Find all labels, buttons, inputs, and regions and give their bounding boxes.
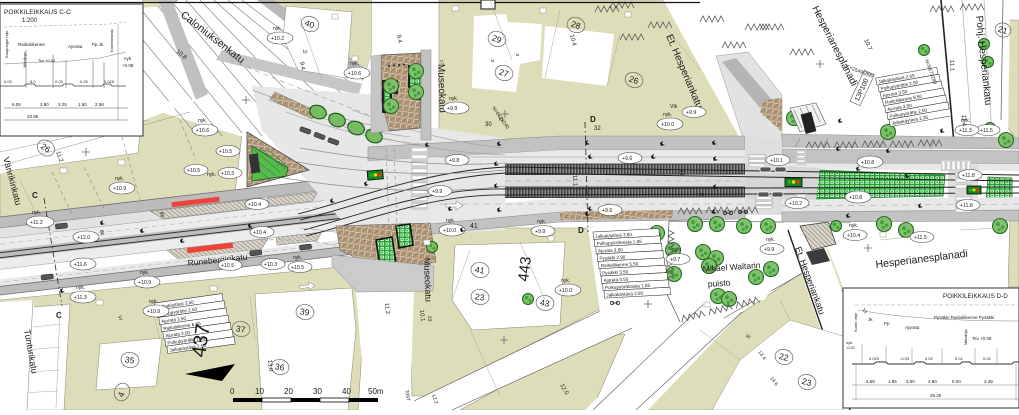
svg-text:puisto: puisto [707,277,731,289]
svg-text:+10.9: +10.9 [147,309,160,315]
svg-text:13.0: 13.0 [266,360,273,373]
svg-text:D: D [578,226,584,235]
svg-text:Tsv +0.08: Tsv +0.08 [38,58,56,63]
svg-text:+9.9: +9.9 [686,110,696,116]
svg-text:0.25: 0.25 [80,79,89,84]
svg-text:nyk.: nyk. [663,112,672,118]
svg-text:0.01: 0.01 [955,356,964,361]
svg-text:+10.3: +10.3 [221,171,234,177]
svg-text:-0.01: -0.01 [846,345,856,350]
svg-text:Ajorata: Ajorata [905,325,920,330]
svg-text:+11.2: +11.2 [30,220,43,226]
svg-text:23: 23 [426,316,432,322]
svg-text:37: 37 [235,323,246,335]
svg-text:nyk.: nyk. [124,56,132,61]
svg-text:3.68: 3.68 [866,379,875,384]
svg-text:m: m [700,192,704,198]
svg-text:1.50: 1.50 [78,102,87,107]
svg-text:6.08: 6.08 [12,102,21,107]
svg-text:+10.6: +10.6 [348,71,361,77]
svg-text:11.4: 11.4 [960,115,967,127]
svg-text:3.50: 3.50 [906,379,915,384]
svg-text:1:200: 1:200 [22,18,38,24]
svg-text:0.02: 0.02 [925,356,934,361]
svg-text:+11.3: +11.3 [74,295,87,301]
svg-text:36: 36 [274,361,285,373]
svg-text:nyk.: nyk. [76,285,85,291]
svg-text:C: C [32,191,38,200]
svg-text:+10.4: +10.4 [248,202,261,208]
svg-text:+9.6: +9.6 [602,208,612,214]
svg-text:+10.0: +10.0 [559,288,572,294]
svg-text:nyk.: nyk. [115,176,124,182]
svg-text:+10.5: +10.5 [221,263,234,269]
svg-text:Kalvelankatu: Kalvelankatu [109,29,114,52]
svg-text:+11.6: +11.6 [74,262,87,268]
svg-text:8.0: 8.0 [30,79,36,84]
svg-text:+10.2: +10.2 [789,201,802,207]
svg-text:+9.9: +9.9 [535,229,545,235]
svg-text:0.025: 0.025 [869,356,880,361]
svg-text:30: 30 [313,387,322,396]
svg-text:Mittalinja: Mittalinja [963,328,968,345]
svg-text:443: 443 [515,256,535,283]
svg-text:Jk: Jk [868,317,873,322]
svg-text:Pysäkki Raitioliikenne Pysäk: Pysäkki Raitioliikenne Pysäkki [934,315,994,320]
svg-text:2.58: 2.58 [95,102,104,107]
svg-text:41: 41 [470,223,478,230]
svg-text:26.30: 26.30 [930,393,942,398]
svg-text:41: 41 [474,264,485,276]
svg-text:+11.5: +11.5 [980,128,993,134]
svg-text:0.03: 0.03 [4,79,13,84]
svg-text:1.85: 1.85 [888,379,897,384]
svg-text:nyk.: nyk. [32,210,41,216]
svg-text:POIKKILEIKKAUS C-C: POIKKILEIKKAUS C-C [4,9,71,16]
svg-text:+10.9: +10.9 [138,280,151,286]
svg-text:nyk.: nyk. [273,26,282,32]
svg-text:10: 10 [255,387,264,396]
svg-text:23: 23 [474,291,485,303]
svg-text:23.95: 23.95 [27,114,39,119]
svg-text:C: C [56,311,62,320]
svg-text:-0.03: -0.03 [900,356,910,361]
svg-text:39: 39 [299,306,310,318]
svg-text:+10.1: +10.1 [770,158,783,164]
svg-text:0.02: 0.02 [983,356,992,361]
svg-text:+10.9: +10.9 [113,186,126,192]
svg-text:+9.9: +9.9 [447,106,457,112]
svg-text:+10.8: +10.8 [849,195,862,201]
svg-text:Ajorata: Ajorata [68,44,83,49]
svg-text:11.1: 11.1 [948,60,955,72]
svg-text:43: 43 [539,297,550,309]
svg-text:+11.3: +11.3 [959,128,972,134]
svg-text:+10.4: +10.4 [847,233,860,239]
svg-text:Tsv +0.08: Tsv +0.08 [972,336,992,341]
svg-text:0: 0 [230,387,235,396]
svg-text:nyk.: nyk. [766,237,775,243]
svg-text:nyk.: nyk. [198,118,207,124]
svg-text:+10.6: +10.6 [196,128,209,134]
svg-text:32: 32 [594,126,601,132]
svg-text:+10.0: +10.0 [443,228,456,234]
svg-text:nyk.: nyk. [672,247,681,253]
svg-text:Pp Jk: Pp Jk [92,42,104,47]
svg-text:+10.3: +10.3 [264,262,277,268]
svg-text:2.90: 2.90 [928,379,937,384]
svg-text:Museokatu: Museokatu [422,258,434,302]
svg-text:+11.8: +11.8 [962,173,975,179]
svg-text:0.03: 0.03 [55,79,64,84]
svg-text:2.49: 2.49 [984,379,993,384]
svg-text:Kunto ohje: Kunto ohje [853,312,858,332]
svg-text:35: 35 [124,354,135,366]
svg-text:D: D [590,115,596,124]
svg-text:10.1: 10.1 [418,310,425,323]
svg-text:+11.5: +11.5 [914,235,927,241]
svg-text:+9.7: +9.7 [670,257,680,263]
svg-text:nyk.: nyk. [449,96,458,102]
svg-text:+12.0: +12.0 [77,235,90,241]
svg-text:+10.8: +10.8 [861,160,874,166]
svg-text:nyk.: nyk. [293,255,302,261]
svg-text:+9.9: +9.9 [764,247,774,253]
svg-text:40: 40 [342,387,351,396]
svg-text:30: 30 [485,122,492,128]
svg-text:5.50: 5.50 [952,379,961,384]
svg-text:nyk.: nyk. [561,278,570,284]
svg-text:Kaupungin raja: Kaupungin raja [4,30,9,58]
svg-text:+10.4: +10.4 [253,230,266,236]
svg-text:+10.2: +10.2 [271,36,284,42]
svg-text:nyk.: nyk. [446,218,455,224]
svg-text:nyk.: nyk. [849,223,858,229]
svg-text:+10.5: +10.5 [291,265,304,271]
svg-text:+10.0: +10.0 [661,122,674,128]
svg-text:2.80: 2.80 [40,102,49,107]
svg-text:437: 437 [188,323,214,359]
svg-text:nyk.: nyk. [140,270,149,276]
svg-text:0.025: 0.025 [104,79,115,84]
svg-text:+11.8: +11.8 [960,203,973,209]
svg-text:+9.8: +9.8 [449,158,459,164]
svg-text:nyk.: nyk. [350,61,359,67]
svg-text:23: 23 [678,170,684,176]
svg-text:nyk.: nyk. [207,172,216,178]
svg-text:+9.6: +9.6 [622,156,632,162]
svg-text:3.25: 3.25 [58,102,67,107]
svg-text:20: 20 [284,387,293,396]
svg-text:+0.08: +0.08 [122,63,134,68]
svg-text:nyk.: nyk. [537,219,546,225]
svg-text:50m: 50m [368,387,384,396]
svg-text:VIk: VIk [670,104,678,110]
svg-text:POIKKILEIKKAUS D-D: POIKKILEIKKAUS D-D [943,293,1008,300]
svg-text:Raitioliikenne: Raitioliikenne [18,42,45,47]
svg-text:nyk.: nyk. [149,299,158,305]
svg-text:+9.9: +9.9 [432,189,442,195]
svg-text:+10.5: +10.5 [187,168,200,174]
svg-text:Pp: Pp [884,321,890,326]
svg-text:11.2: 11.2 [383,303,390,315]
svg-text:11.1: 11.1 [571,175,578,187]
svg-text:+10.5: +10.5 [219,149,232,155]
